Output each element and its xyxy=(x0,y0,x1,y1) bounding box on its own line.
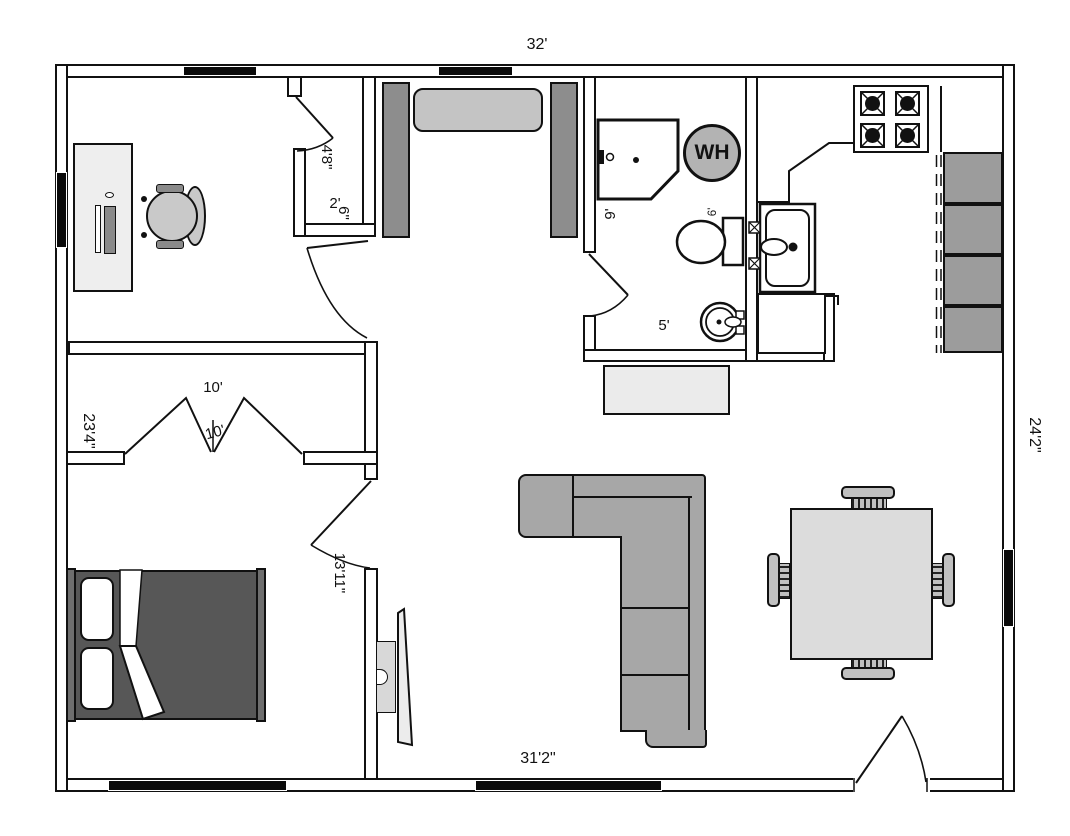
refrigerator[interactable] xyxy=(757,293,826,354)
wall-bedroom-top-right xyxy=(303,451,378,465)
dim-bathroom-width: 5' xyxy=(652,317,676,334)
window-bottom-bedroom xyxy=(108,780,287,791)
keyboard xyxy=(95,205,101,253)
chair-wheel xyxy=(141,196,147,202)
dining-chair-right[interactable] xyxy=(942,553,955,607)
shower-head xyxy=(607,154,614,161)
sofa-seam xyxy=(622,674,688,676)
window-top-entry xyxy=(438,66,513,76)
sofa-seam xyxy=(572,475,574,537)
floor-plan-canvas: WH xyxy=(0,0,1070,836)
dim-office-closet-depth: 4'8" xyxy=(315,135,335,179)
bathroom-door-leaf[interactable] xyxy=(589,254,628,295)
counter-edge xyxy=(758,143,854,202)
dim-left-height: 23'4" xyxy=(77,406,97,456)
dim-living-room: 13'11" xyxy=(328,548,348,598)
base-cabinet-1[interactable] xyxy=(943,152,1003,204)
wall-hall-upper xyxy=(362,76,376,237)
computer-monitor xyxy=(104,206,116,254)
kitchen-faucet xyxy=(761,239,787,255)
office-chair[interactable] xyxy=(146,190,198,242)
pedestal-sink[interactable] xyxy=(701,303,739,341)
base-cabinet-2[interactable] xyxy=(943,204,1003,255)
closet-door-leaf[interactable] xyxy=(296,97,333,138)
bathroom-door-arc xyxy=(590,295,628,316)
front-door-opening xyxy=(853,776,930,794)
sink-handle xyxy=(736,326,744,334)
office-chair-armrest-bottom xyxy=(156,240,184,249)
wall-bathroom-left xyxy=(583,76,596,253)
office-door-arc xyxy=(307,248,367,338)
dining-table[interactable] xyxy=(790,508,933,660)
kitchen-sink-basin xyxy=(766,210,809,286)
kitchen-sink[interactable] xyxy=(760,204,815,292)
pillow xyxy=(80,647,114,710)
desk[interactable] xyxy=(73,143,133,292)
pillow xyxy=(80,577,114,641)
entry-bench[interactable] xyxy=(413,88,543,132)
wall-closet-left xyxy=(293,148,306,237)
dim-bedroom-closet-door: 10' xyxy=(198,420,231,444)
dim-bathroom-length: 9' xyxy=(602,200,622,228)
sink-drain xyxy=(717,320,722,325)
base-cabinet-4[interactable] xyxy=(943,306,1003,353)
stove[interactable] xyxy=(854,86,928,152)
sectional-sofa-side[interactable] xyxy=(620,536,706,732)
dim-bedroom-closet: 10' xyxy=(198,379,228,396)
bed-headboard xyxy=(66,568,76,722)
chair-wheel xyxy=(141,232,147,238)
window-right-dining xyxy=(1003,549,1014,627)
window-left-office xyxy=(56,172,67,248)
front-door-leaf[interactable] xyxy=(856,716,902,783)
shower-drain xyxy=(633,157,639,163)
water-heater[interactable]: WH xyxy=(683,124,741,182)
dim-right-height: 24'2" xyxy=(1023,410,1043,460)
base-cabinet-3[interactable] xyxy=(943,255,1003,306)
wall-entry-partition-left xyxy=(382,82,410,238)
kitchen-sink-drain xyxy=(789,243,798,252)
wall-closet-door-stub xyxy=(287,76,302,97)
window-top-office xyxy=(183,66,257,76)
sink-handle xyxy=(736,311,744,319)
dim-toilet-clearance: 6' xyxy=(707,202,723,222)
dim-bottom-width: 31'2" xyxy=(510,750,566,768)
front-door-arc xyxy=(902,716,926,782)
sofa-seam xyxy=(688,498,690,730)
water-heater-label: WH xyxy=(695,141,730,165)
sofa-seam xyxy=(622,607,688,609)
dim-top-width: 32' xyxy=(515,36,559,54)
office-chair-armrest-top xyxy=(156,184,184,193)
dim-office-closet-width-in: 6" xyxy=(338,204,352,222)
toilet-tank xyxy=(723,218,743,265)
sectional-sofa-top[interactable] xyxy=(518,474,706,538)
mouse xyxy=(105,192,114,198)
sofa-seam xyxy=(572,496,692,498)
sink-faucet xyxy=(725,317,741,327)
dining-chair-right-seat xyxy=(932,563,943,599)
sectional-sofa-foot[interactable] xyxy=(645,730,707,748)
tv[interactable] xyxy=(398,609,412,745)
wall-office-bottom xyxy=(68,341,378,355)
toilet[interactable] xyxy=(677,221,725,263)
stove-burners xyxy=(861,92,919,147)
bifold-door-left[interactable] xyxy=(125,398,211,454)
dining-chair-bottom[interactable] xyxy=(841,667,895,680)
dining-chair-left-seat xyxy=(779,563,790,599)
wall-entry-partition-right xyxy=(550,82,578,238)
office-door-leaf[interactable] xyxy=(307,241,368,248)
storage-dresser[interactable] xyxy=(603,365,730,415)
shower-valve xyxy=(599,150,604,164)
shower[interactable] xyxy=(598,120,678,199)
bedroom-door-leaf[interactable] xyxy=(311,481,371,545)
window-bottom-living xyxy=(475,780,662,791)
bed-footboard xyxy=(256,568,266,722)
wall-exterior-right xyxy=(1002,64,1015,792)
pedestal-sink-basin xyxy=(706,308,734,336)
